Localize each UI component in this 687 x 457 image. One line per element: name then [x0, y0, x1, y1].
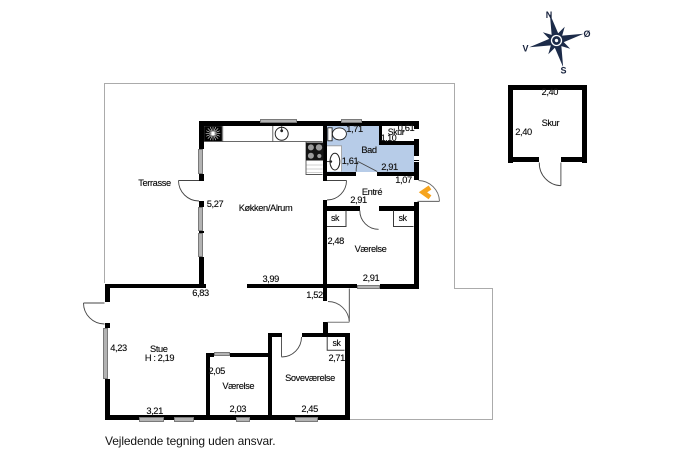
svg-text:V: V — [522, 44, 528, 54]
svg-text:S: S — [560, 66, 566, 76]
svg-text:Ø: Ø — [583, 29, 590, 39]
svg-text:N: N — [546, 10, 553, 20]
